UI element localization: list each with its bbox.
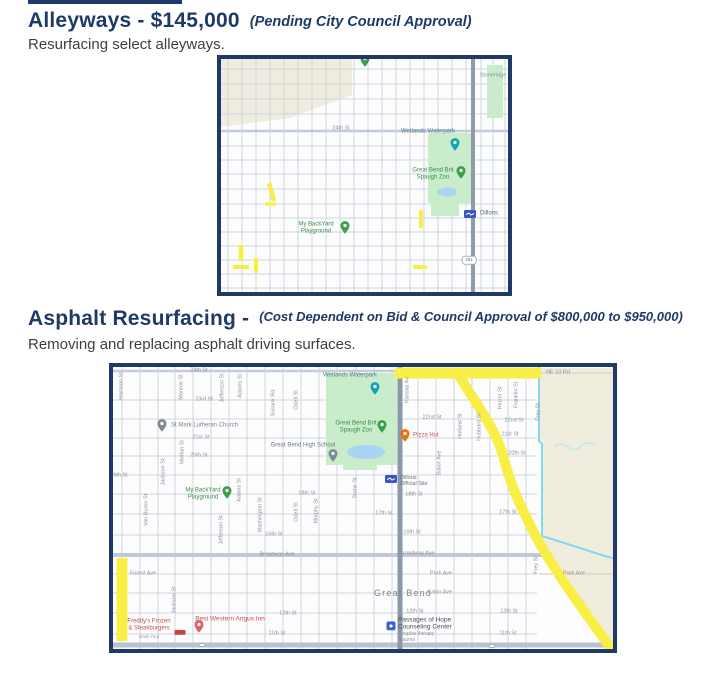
place-pin-icon bbox=[378, 420, 387, 433]
street-label: 19th St bbox=[110, 473, 127, 479]
street-label: NE 10 Rd bbox=[546, 370, 570, 376]
street-label: Franklin St bbox=[514, 382, 520, 408]
poi-label: Wetlands Waterpark bbox=[401, 129, 455, 136]
dillons-icon bbox=[464, 210, 476, 218]
street-label: Jefferson St bbox=[219, 515, 225, 544]
street-label: 20th St bbox=[508, 451, 525, 457]
badge-icon bbox=[175, 630, 186, 635]
place-pin-icon bbox=[371, 382, 380, 395]
street-label: 16th St bbox=[403, 530, 420, 536]
poi-label: Passages of HopeCounseling Center bbox=[398, 617, 452, 632]
section-title: Alleyways - $145,000 bbox=[28, 8, 240, 34]
poi-label: Great Bend BritSpaugh Zoo bbox=[412, 167, 453, 180]
poi-label: St Mark Lutheran Church bbox=[171, 423, 238, 430]
street-label: Van Buren St bbox=[144, 494, 150, 526]
street-label: Broadway Ave bbox=[259, 552, 294, 558]
street-label: Kansas Av bbox=[405, 377, 411, 403]
place-pin-icon bbox=[451, 138, 460, 151]
street-label: Jackson St bbox=[172, 587, 178, 614]
street-label: 22nd St bbox=[505, 418, 524, 424]
street-label: 13th St bbox=[500, 609, 517, 615]
street-label: 18th St bbox=[298, 491, 315, 497]
poi-label: Great Bend bbox=[374, 588, 432, 598]
map-labels-layer: 24th StNE 10 Rd23rd St22nd St22nd St21st… bbox=[113, 367, 613, 649]
street-label: 23rd St bbox=[195, 397, 213, 403]
poi-label: Pizza Hut bbox=[413, 433, 439, 440]
highway-shield: 281 bbox=[462, 256, 477, 265]
poi-label: My BackYardPlayground bbox=[298, 221, 333, 234]
street-label: 24th St bbox=[332, 126, 349, 132]
highway-shield bbox=[489, 644, 496, 648]
place-pin-icon bbox=[158, 419, 167, 432]
poi-label: Dillons bbox=[480, 211, 498, 218]
poi-label: Great Bend High School bbox=[271, 443, 336, 450]
poi-label: My BackYardPlayground bbox=[185, 487, 220, 500]
street-label: Adams St bbox=[237, 478, 243, 502]
street-label: Frey St bbox=[534, 556, 540, 574]
street-label: 22nd St bbox=[423, 415, 442, 421]
asphalt-resurfacing-map: 24th StNE 10 Rd23rd St22nd St22nd St21st… bbox=[109, 363, 617, 653]
place-pin-icon bbox=[457, 166, 466, 179]
section-subtitle: Resurfacing select alleyways. bbox=[28, 36, 225, 53]
street-label: Forest Ave bbox=[130, 571, 156, 577]
place-pin-icon bbox=[223, 486, 232, 499]
street-label: Odell St bbox=[294, 390, 300, 410]
street-label: Jefferson St bbox=[220, 373, 226, 402]
poi-sublabel: Grab Your bbox=[139, 634, 159, 639]
street-label: Heizer St bbox=[498, 387, 504, 410]
alleyways-map: 24th StStoneridge281Wetlands WaterparkGr… bbox=[217, 55, 512, 296]
street-label: Monroe St bbox=[179, 374, 185, 399]
street-label: 11th St bbox=[268, 631, 285, 637]
street-label: 20th St bbox=[190, 453, 207, 459]
square-icon bbox=[387, 621, 396, 630]
place-pin-icon bbox=[341, 221, 350, 234]
street-label: 16th St bbox=[265, 532, 282, 538]
street-label: Frey St bbox=[536, 403, 542, 421]
street-label: Harrison St bbox=[119, 372, 125, 400]
street-label: Baker Ave bbox=[437, 451, 443, 476]
street-label: Odell St bbox=[294, 502, 300, 522]
section-subtitle: Removing and replacing asphalt driving s… bbox=[28, 336, 356, 353]
street-label: Adams St bbox=[238, 374, 244, 398]
place-pin-icon bbox=[401, 429, 410, 442]
street-label: Morphy St bbox=[314, 498, 320, 523]
street-label: Park Ave bbox=[563, 571, 585, 577]
poi-label: Freddy's Frozen& Steakburgers bbox=[127, 618, 170, 631]
street-label: 18th St bbox=[405, 492, 422, 498]
poi-label: Great Bend BritSpaugh Zoo bbox=[335, 420, 376, 433]
poi-label: Wetlands Waterpark bbox=[323, 373, 377, 380]
section-annotation: (Cost Dependent on Bid & Council Approva… bbox=[259, 306, 683, 324]
alleyways-heading: Alleyways - $145,000 (Pending City Counc… bbox=[28, 8, 472, 34]
street-label: 12th St bbox=[406, 609, 423, 615]
poi-label: DillonsOfficial Site bbox=[400, 475, 428, 487]
place-pin-icon bbox=[361, 55, 370, 67]
poi-sublabel: Couples therapyTrauma bbox=[398, 631, 434, 643]
dillons-icon bbox=[385, 475, 397, 483]
street-label: Hubbard St bbox=[477, 413, 483, 441]
street-label: 17th St bbox=[499, 510, 516, 516]
street-label: Stoneridge bbox=[480, 73, 507, 79]
street-label: Park Ave bbox=[430, 571, 452, 577]
street-label: Jackson St bbox=[161, 459, 167, 486]
street-label: Washington St bbox=[258, 497, 264, 533]
street-label: 21st St bbox=[501, 432, 518, 438]
section-title: Asphalt Resurfacing - bbox=[28, 306, 249, 332]
street-label: 17th St bbox=[375, 511, 392, 517]
street-label: 24th St bbox=[190, 368, 207, 374]
street-label: Broadway Ave bbox=[399, 551, 434, 557]
cropped-map-edge-fragment bbox=[28, 0, 182, 4]
map-labels-layer: 24th StStoneridge281Wetlands WaterparkGr… bbox=[221, 59, 508, 292]
street-label: Holland St bbox=[458, 413, 464, 438]
street-label: Morton St bbox=[180, 440, 186, 464]
street-label: Stone St bbox=[353, 477, 359, 498]
highway-shield bbox=[199, 643, 206, 647]
place-pin-icon bbox=[329, 449, 338, 462]
street-label: 21st St bbox=[192, 435, 209, 441]
street-label: 11th St bbox=[499, 631, 516, 637]
street-label: 12th St bbox=[279, 611, 296, 617]
poi-label: Best Western Angus Inn bbox=[195, 615, 265, 622]
section-annotation: (Pending City Council Approval) bbox=[250, 8, 472, 30]
page: Alleyways - $145,000 (Pending City Counc… bbox=[0, 0, 724, 675]
asphalt-heading: Asphalt Resurfacing - (Cost Dependent on… bbox=[28, 306, 683, 332]
street-label: Susank Rd bbox=[271, 390, 277, 417]
